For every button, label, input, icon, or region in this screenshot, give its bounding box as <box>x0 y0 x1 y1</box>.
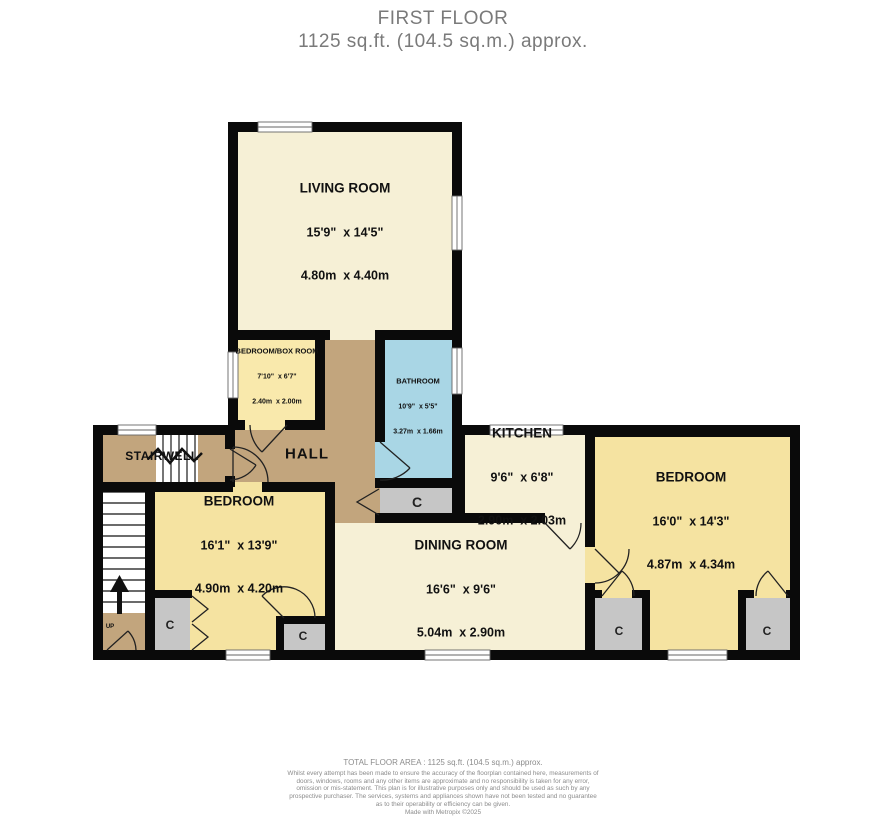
bathroom-label: BATHROOM 10'9" x 5'5" 3.27m x 1.66m <box>393 360 442 454</box>
room-name: DINING ROOM <box>415 538 508 553</box>
floorplan: LIVING ROOM 15'9" x 14'5" 4.80m x 4.40m … <box>0 0 886 819</box>
stairs-landing-floor <box>98 610 148 654</box>
room-name: BATHROOM <box>393 377 442 386</box>
closet-label-bedR-2: C <box>763 624 772 638</box>
bedroom-left-label: BEDROOM 16'1" x 13'9" 4.90m x 4.20m <box>195 465 283 625</box>
closet-label-bedL-2: C <box>299 629 308 643</box>
disclaimer-text: Whilst every attempt has been made to en… <box>287 770 599 809</box>
room-dims-imperial: 9'6" x 6'8" <box>478 470 566 485</box>
closet-label-bedR-1: C <box>615 624 624 638</box>
room-name: BEDROOM <box>195 494 283 509</box>
room-name: KITCHEN <box>478 426 566 441</box>
closet-label-bedL-1: C <box>166 618 175 632</box>
room-dims-imperial: 7'10" x 6'7" <box>236 373 319 382</box>
room-dims-imperial: 16'0" x 14'3" <box>647 514 735 529</box>
room-dims-imperial: 15'9" x 14'5" <box>300 225 391 240</box>
room-dims-imperial: 16'1" x 13'9" <box>195 538 283 553</box>
footer: TOTAL FLOOR AREA : 1125 sq.ft. (104.5 sq… <box>0 758 886 816</box>
room-dims-metric: 2.40m x 2.00m <box>236 398 319 407</box>
closet-label-center: C <box>412 494 422 510</box>
floorplan-page: FIRST FLOOR 1125 sq.ft. (104.5 sq.m.) ap… <box>0 0 886 819</box>
room-dims-imperial: 10'9" x 5'5" <box>393 403 442 412</box>
dining-room-label: DINING ROOM 16'6" x 9'6" 5.04m x 2.90m <box>415 509 508 669</box>
metropix-credit: Made with Metropix ©2025 <box>0 809 886 817</box>
room-dims-metric: 4.87m x 4.34m <box>647 557 735 572</box>
room-dims-metric: 4.90m x 4.20m <box>195 581 283 596</box>
up-label: UP <box>106 624 114 630</box>
room-dims-metric: 5.04m x 2.90m <box>415 625 508 640</box>
room-dims-metric: 4.80m x 4.40m <box>300 268 391 283</box>
total-floor-area: TOTAL FLOOR AREA : 1125 sq.ft. (104.5 sq… <box>0 758 886 768</box>
room-dims-imperial: 16'6" x 9'6" <box>415 582 508 597</box>
room-name: BEDROOM/BOX ROOM <box>236 347 319 356</box>
room-name: BEDROOM <box>647 470 735 485</box>
floorplan-graphic <box>0 0 886 819</box>
room-name: LIVING ROOM <box>300 181 391 196</box>
bedroom-right-label: BEDROOM 16'0" x 14'3" 4.87m x 4.34m <box>647 441 735 601</box>
box-room-label: BEDROOM/BOX ROOM 7'10" x 6'7" 2.40m x 2.… <box>236 330 319 424</box>
stairs-lower <box>103 487 145 613</box>
living-room-label: LIVING ROOM 15'9" x 14'5" 4.80m x 4.40m <box>300 152 391 312</box>
hall-label: HALL <box>285 446 329 463</box>
room-dims-metric: 3.27m x 1.66m <box>393 428 442 437</box>
stairwell-label: STAIRWELL <box>125 449 198 463</box>
